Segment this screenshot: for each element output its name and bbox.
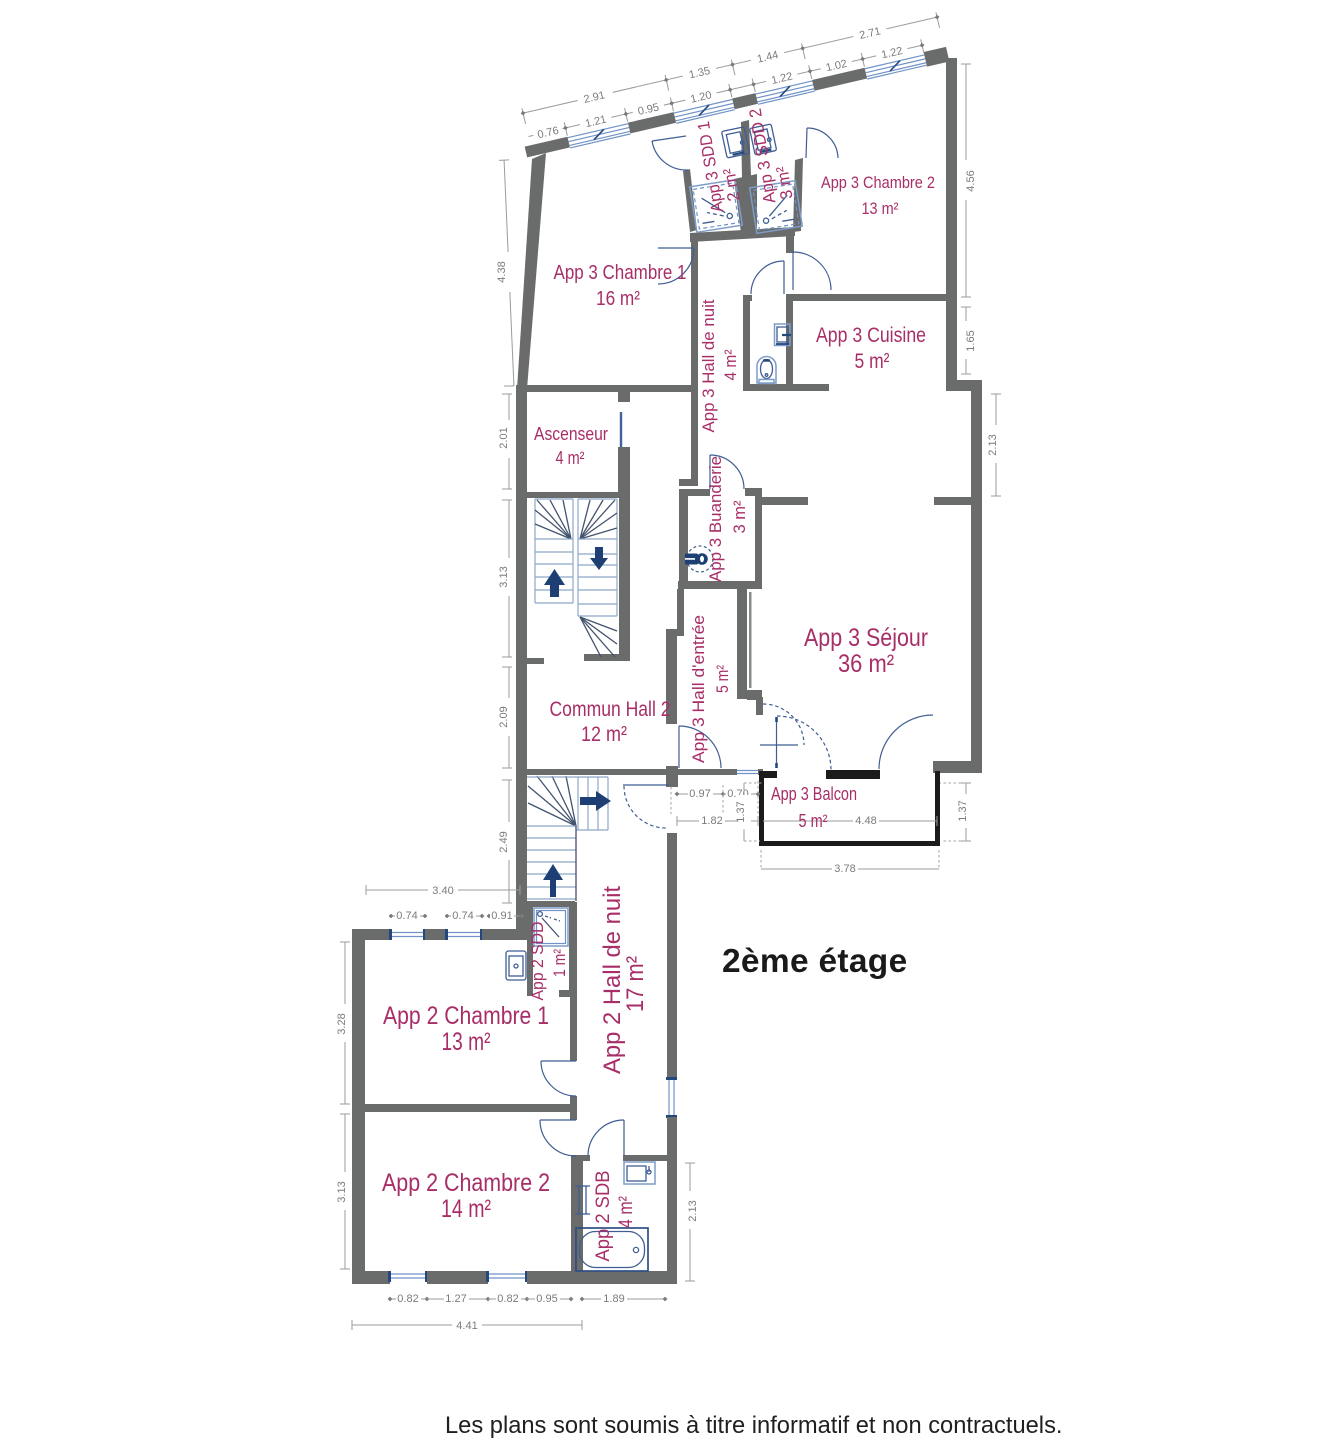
svg-text:1.37: 1.37 [957,800,969,821]
svg-text:App 3 Chambre 1: App 3 Chambre 1 [554,262,687,284]
svg-text:App 2 SDD: App 2 SDD [528,922,547,1001]
svg-text:4 m²: 4 m² [721,349,740,380]
svg-text:3 m²: 3 m² [730,500,749,533]
svg-text:0.91: 0.91 [491,910,512,922]
svg-text:App 2 SDB: App 2 SDB [593,1171,614,1262]
svg-text:0.82: 0.82 [497,1293,518,1305]
svg-text:1.27: 1.27 [445,1293,466,1305]
svg-text:4 m²: 4 m² [556,448,585,468]
svg-text:App 3 Hall d'entrée: App 3 Hall d'entrée [689,615,708,763]
svg-text:14 m²: 14 m² [441,1195,491,1223]
svg-text:4.56: 4.56 [965,170,977,191]
svg-text:0.82: 0.82 [397,1293,418,1305]
svg-text:5 m²: 5 m² [799,811,828,831]
svg-text:2.49: 2.49 [498,831,510,852]
svg-text:16 m²: 16 m² [596,288,640,310]
svg-text:0.95: 0.95 [536,1293,557,1305]
svg-text:5 m²: 5 m² [855,350,890,373]
svg-text:36 m²: 36 m² [838,650,894,678]
svg-text:13 m²: 13 m² [862,200,899,218]
svg-text:App 3 Buanderie: App 3 Buanderie [706,456,725,582]
svg-text:17 m²: 17 m² [622,956,649,1012]
svg-text:4.48: 4.48 [855,815,876,827]
svg-text:2.09: 2.09 [498,706,510,727]
svg-text:Les plans sont soumis à titre: Les plans sont soumis à titre informatif… [445,1413,1063,1439]
svg-text:App 3 Séjour: App 3 Séjour [804,624,928,652]
svg-text:2.13: 2.13 [987,434,999,455]
svg-text:1.65: 1.65 [965,330,977,351]
svg-text:2.01: 2.01 [498,427,510,448]
svg-text:App 3 Balcon: App 3 Balcon [771,784,857,804]
svg-text:1.89: 1.89 [603,1293,624,1305]
svg-text:App 2 Chambre 2: App 2 Chambre 2 [382,1169,550,1197]
svg-text:0.74: 0.74 [396,910,417,922]
svg-text:App 3 Cuisine: App 3 Cuisine [816,324,926,347]
svg-text:4.41: 4.41 [456,1320,477,1332]
svg-text:13 m²: 13 m² [442,1028,491,1056]
svg-text:4.38: 4.38 [496,261,508,282]
svg-text:3.40: 3.40 [432,885,453,897]
svg-text:12 m²: 12 m² [581,723,627,746]
svg-text:0.97: 0.97 [689,788,710,800]
svg-text:App 2 Chambre 1: App 2 Chambre 1 [383,1002,549,1030]
svg-text:App 3 Chambre 2: App 3 Chambre 2 [821,174,935,192]
svg-text:Commun Hall 2: Commun Hall 2 [550,698,671,721]
svg-text:3.13: 3.13 [498,566,510,587]
svg-text:1 m²: 1 m² [550,949,569,977]
svg-text:3.28: 3.28 [336,1013,348,1034]
svg-text:2ème étage: 2ème étage [722,943,908,980]
svg-text:5 m²: 5 m² [713,665,732,693]
svg-text:App 3 Hall de nuit: App 3 Hall de nuit [699,299,718,432]
svg-text:1.82: 1.82 [701,815,722,827]
svg-text:Ascenseur: Ascenseur [534,424,608,444]
svg-text:1.37: 1.37 [735,801,747,822]
svg-text:0.74: 0.74 [452,910,473,922]
svg-text:4 m²: 4 m² [616,1196,637,1228]
svg-text:3.78: 3.78 [834,863,855,875]
svg-text:2.13: 2.13 [687,1200,699,1221]
svg-text:3.13: 3.13 [336,1181,348,1202]
